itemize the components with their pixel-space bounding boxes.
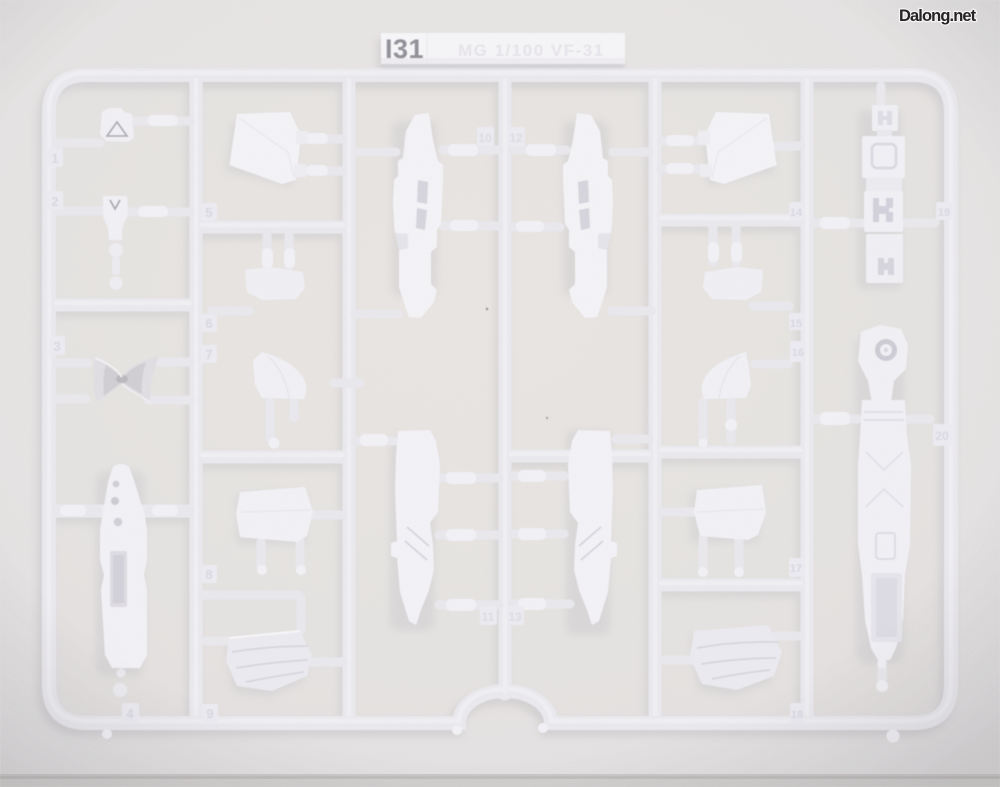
svg-text:Dalong.net: Dalong.net [899, 7, 977, 25]
